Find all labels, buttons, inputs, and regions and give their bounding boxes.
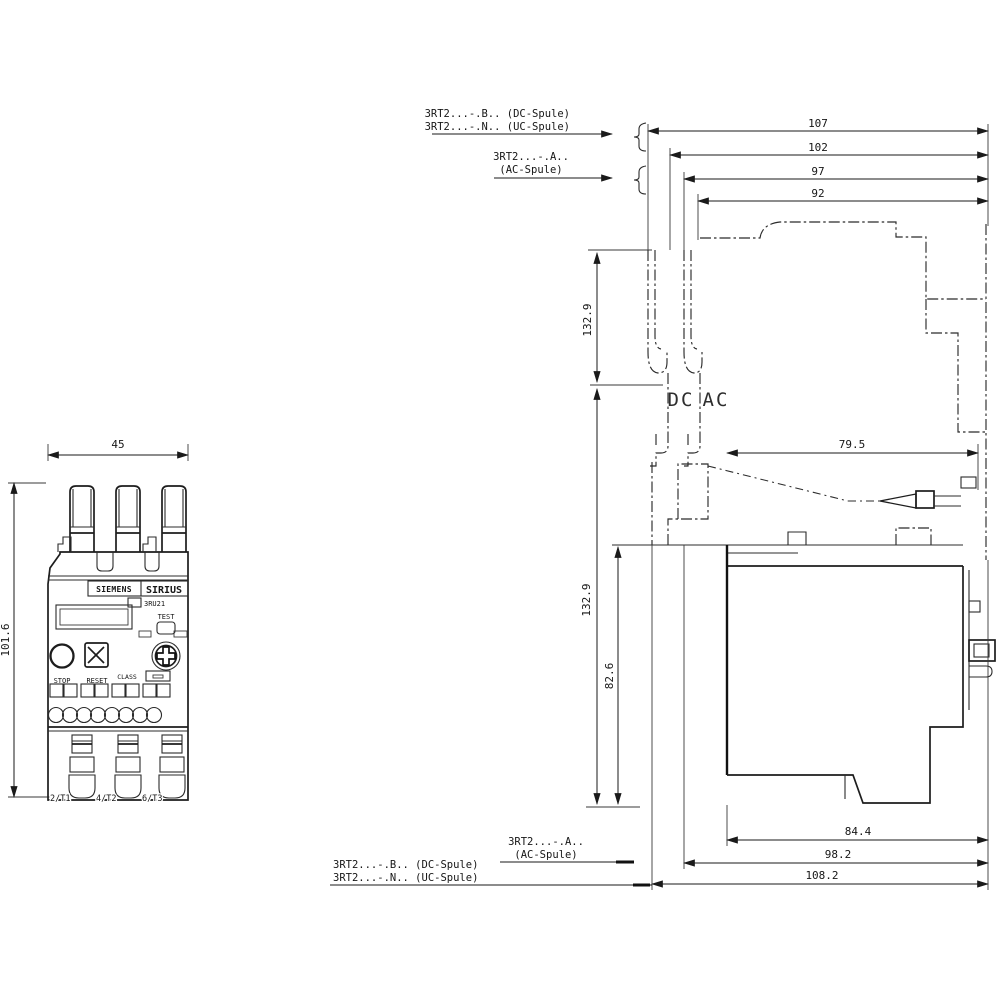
top-dimensions: 107 102 97 92 [648, 117, 988, 250]
relay-front-body: SIEMENS SIRIUS 3RU21 TEST STOP [48, 486, 188, 804]
leader-top-ac-2: (AC-Spule) [499, 164, 562, 176]
clip-detail [961, 477, 976, 488]
front-height-value: 101.6 [0, 623, 12, 656]
class-label: CLASS [117, 673, 137, 681]
dim-108-2: 108.2 [805, 869, 838, 882]
class-window [146, 671, 170, 681]
dim-79-5: 79.5 [839, 438, 866, 451]
top-tab [788, 532, 806, 545]
relay-side-body [612, 477, 995, 803]
selector-squares [50, 684, 170, 697]
dimension-drawing: 45 101.6 [0, 0, 1000, 1000]
terminal-column-2 [115, 735, 141, 798]
dim-132-9-lower: 132.9 [580, 583, 593, 616]
leader-top-dc: 3RT2...-.B.. (DC-Spule) [425, 108, 570, 120]
dim-107: 107 [808, 117, 828, 130]
terminal-column-3 [159, 735, 185, 798]
class-mark [153, 675, 163, 678]
left-dimensions: 132.9 132.9 82.6 [580, 253, 640, 807]
dial-cross [157, 647, 175, 665]
dim-98-2: 98.2 [825, 848, 852, 861]
test-label: TEST [158, 613, 176, 621]
bottom-leader-labels: 3RT2...-.A.. (AC-Spule) 3RT2...-.B.. (DC… [330, 836, 652, 885]
side-view: 107 102 97 92 3RT2...-.B.. (DC-Spule) 3R… [330, 108, 995, 890]
dim-84-4: 84.4 [845, 825, 872, 838]
lower-tab [969, 666, 992, 677]
brand-label: SIEMENS [96, 585, 132, 594]
reset-button[interactable] [85, 643, 108, 667]
front-height-dimension: 101.6 [0, 483, 50, 797]
leader-top-ac-1: 3RT2...-.A.. [493, 151, 569, 163]
series-label: SIRIUS [146, 585, 182, 596]
terminal-label-2: 4/T2 [96, 794, 116, 804]
indicator-window-right [174, 631, 187, 637]
coil-ac-label: AC [703, 389, 730, 411]
leader-top-uc: 3RT2...-.N.. (UC-Spule) [425, 121, 570, 133]
brace-bottom [634, 166, 646, 194]
contactor-phantom-outline [700, 222, 986, 560]
channel-2 [145, 552, 159, 571]
leader-bottom-ac-1: 3RT2...-.A.. [508, 836, 584, 848]
coil-variant-profiles: DC AC [588, 250, 880, 545]
vent-circles [49, 708, 162, 723]
front-width-value: 45 [111, 438, 124, 451]
stop-button[interactable] [51, 645, 74, 668]
dim-82-6: 82.6 [603, 663, 616, 690]
bottom-terminals: 2/T1 4/T2 6/T3 [50, 735, 185, 804]
current-dial[interactable] [152, 642, 180, 670]
front-view: 45 101.6 [0, 438, 188, 804]
bottom-dimensions: 84.4 98.2 108.2 [652, 545, 988, 890]
rating-label [56, 605, 132, 629]
brace-top [634, 123, 646, 151]
model-box [128, 598, 141, 607]
dim-102: 102 [808, 141, 828, 154]
brand-band: SIEMENS SIRIUS [88, 581, 188, 596]
model-label: 3RU21 [144, 600, 165, 608]
screwdriver-icon [880, 491, 961, 508]
front-width-dimension: 45 [48, 438, 188, 461]
drawing-svg: 45 101.6 [0, 0, 1000, 1000]
leader-bottom-uc: 3RT2...-.N.. (UC-Spule) [333, 872, 478, 884]
terminal-label-3: 6/T3 [142, 794, 162, 804]
dim-132-9-upper: 132.9 [581, 303, 594, 336]
lever-tip-left [58, 537, 71, 552]
side-stud [969, 601, 980, 612]
channel-1 [97, 552, 113, 571]
terminal-label-1: 2/T1 [50, 794, 70, 804]
leader-bottom-dc: 3RT2...-.B.. (DC-Spule) [333, 859, 478, 871]
dim-92: 92 [811, 187, 824, 200]
test-button[interactable] [157, 622, 175, 634]
terminal-prongs [70, 486, 186, 552]
indicator-window-left [139, 631, 151, 637]
terminal-column-1 [69, 735, 95, 798]
lever-tip-right [143, 537, 156, 552]
depth-dimension: 79.5 [727, 438, 978, 490]
adjustment-screw[interactable] [969, 640, 995, 661]
dim-97: 97 [811, 165, 824, 178]
top-leader-labels: 3RT2...-.B.. (DC-Spule) 3RT2...-.N.. (UC… [425, 108, 646, 194]
coil-dc-label: DC [668, 389, 695, 411]
leader-bottom-ac-2: (AC-Spule) [514, 849, 577, 861]
